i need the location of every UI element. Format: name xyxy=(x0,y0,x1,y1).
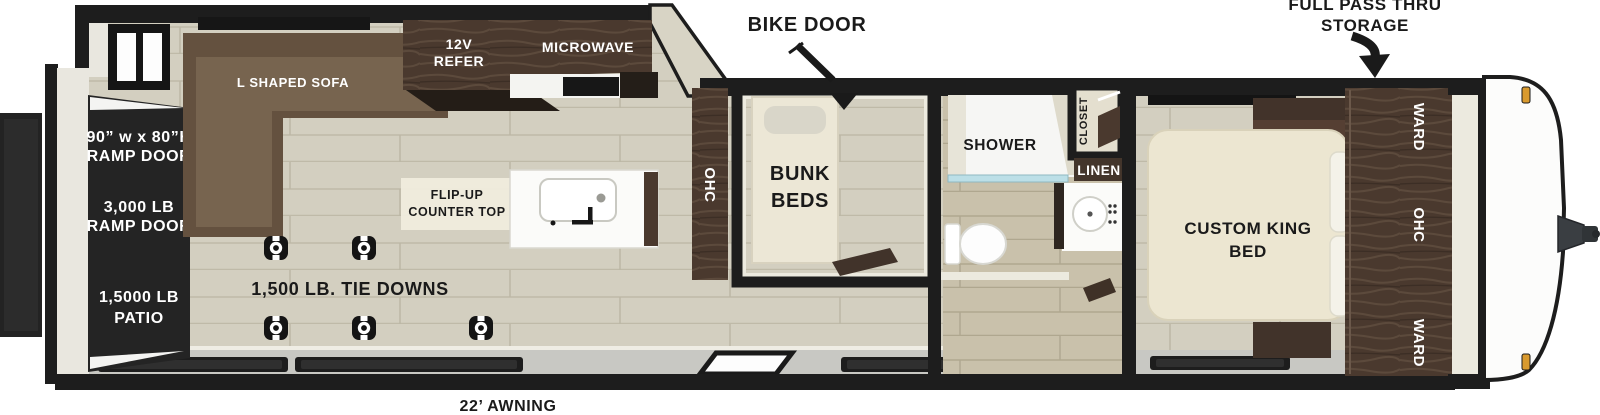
linen-label: LINEN xyxy=(1077,163,1121,178)
ramp-door-size-line2: RAMP DOOR xyxy=(87,148,192,165)
garage-rear-window xyxy=(108,24,170,90)
bunk-pillow xyxy=(764,106,826,134)
sofa-label: L SHAPED SOFA xyxy=(237,75,349,90)
bunk-label-line2: BEDS xyxy=(771,190,829,212)
ward-bottom-label: WARD xyxy=(1410,319,1427,367)
king-bed-label-line1: CUSTOM KING xyxy=(1184,219,1311,238)
king-bed-label-line2: BED xyxy=(1229,242,1267,261)
ramp-door-weight-line1: 3,000 LB xyxy=(104,199,175,216)
refer-label-line1: 12V xyxy=(446,36,473,52)
patio-deployed-panel xyxy=(0,113,42,337)
bathroom: SHOWER CLOSET LINEN xyxy=(928,86,1124,376)
rear-wall-outer xyxy=(45,64,58,384)
ward-ohc-label: OHC xyxy=(1410,207,1427,242)
closet: CLOSET xyxy=(1072,86,1122,156)
entry-door xyxy=(700,353,792,374)
ohc-divider-cabinet: OHC xyxy=(692,88,728,280)
wardrobe-column: WARD OHC WARD xyxy=(1345,88,1457,376)
awning-band xyxy=(88,346,1452,376)
cooktop xyxy=(563,77,619,96)
refer-label-line2: REFER xyxy=(434,53,484,69)
shower-label: SHOWER xyxy=(963,137,1036,154)
pass-thru-label-line2: STORAGE xyxy=(1321,16,1409,35)
bed-foot-bench xyxy=(1253,322,1331,358)
ramp-door-size-line1: 90” w x 80”H xyxy=(86,129,191,146)
ward-top-label: WARD xyxy=(1410,103,1427,151)
flip-up-counter-label-box: FLIP-UP COUNTER TOP xyxy=(401,178,513,230)
bottom-wall xyxy=(55,374,1455,390)
tie-downs-label: 1,500 LB. TIE DOWNS xyxy=(251,279,448,299)
toilet xyxy=(945,224,1006,264)
ramp-door-weight-line2: RAMP DOOR xyxy=(87,218,192,235)
floorplan-canvas: 90” w x 80”H RAMP DOOR 3,000 LB RAMP DOO… xyxy=(0,0,1600,415)
garage-window-strip xyxy=(198,17,370,30)
microwave-cabinet: MICROWAVE xyxy=(510,20,658,98)
microwave-label: MICROWAVE xyxy=(542,39,634,55)
shower-stall: SHOWER xyxy=(948,95,1088,182)
bathroom-sink-vanity xyxy=(1054,183,1122,251)
rear-wall xyxy=(57,68,89,374)
rv-floorplan-diagram: 90” w x 80”H RAMP DOOR 3,000 LB RAMP DOO… xyxy=(0,0,1600,415)
pass-thru-storage-area xyxy=(1452,94,1480,376)
flip-up-line2: COUNTER TOP xyxy=(408,205,505,219)
bathroom-lower-wall xyxy=(941,272,1069,280)
patio-line1: 1,5000 LB xyxy=(99,289,179,306)
marker-light xyxy=(1522,87,1530,103)
bike-door-label: BIKE DOOR xyxy=(748,14,867,36)
ramp-door-panel: 90” w x 80”H RAMP DOOR 3,000 LB RAMP DOO… xyxy=(86,95,191,372)
kitchen-island xyxy=(510,170,658,248)
flip-up-line1: FLIP-UP xyxy=(431,188,484,202)
bathroom-left-wall xyxy=(928,88,941,376)
ohc-divider-label: OHC xyxy=(701,167,718,202)
awning-label: 22’ AWNING xyxy=(460,398,557,415)
bunk-label-line1: BUNK xyxy=(770,163,830,185)
bedroom-left-wall xyxy=(1122,88,1136,376)
closet-label: CLOSET xyxy=(1078,97,1090,145)
shower-glass xyxy=(948,175,1068,182)
king-bed: CUSTOM KING BED xyxy=(1148,130,1350,320)
pass-thru-label-line1: FULL PASS THRU xyxy=(1288,0,1441,14)
marker-light xyxy=(1522,354,1530,370)
patio-line2: PATIO xyxy=(114,310,164,327)
linen-cabinet: LINEN xyxy=(1074,158,1124,181)
